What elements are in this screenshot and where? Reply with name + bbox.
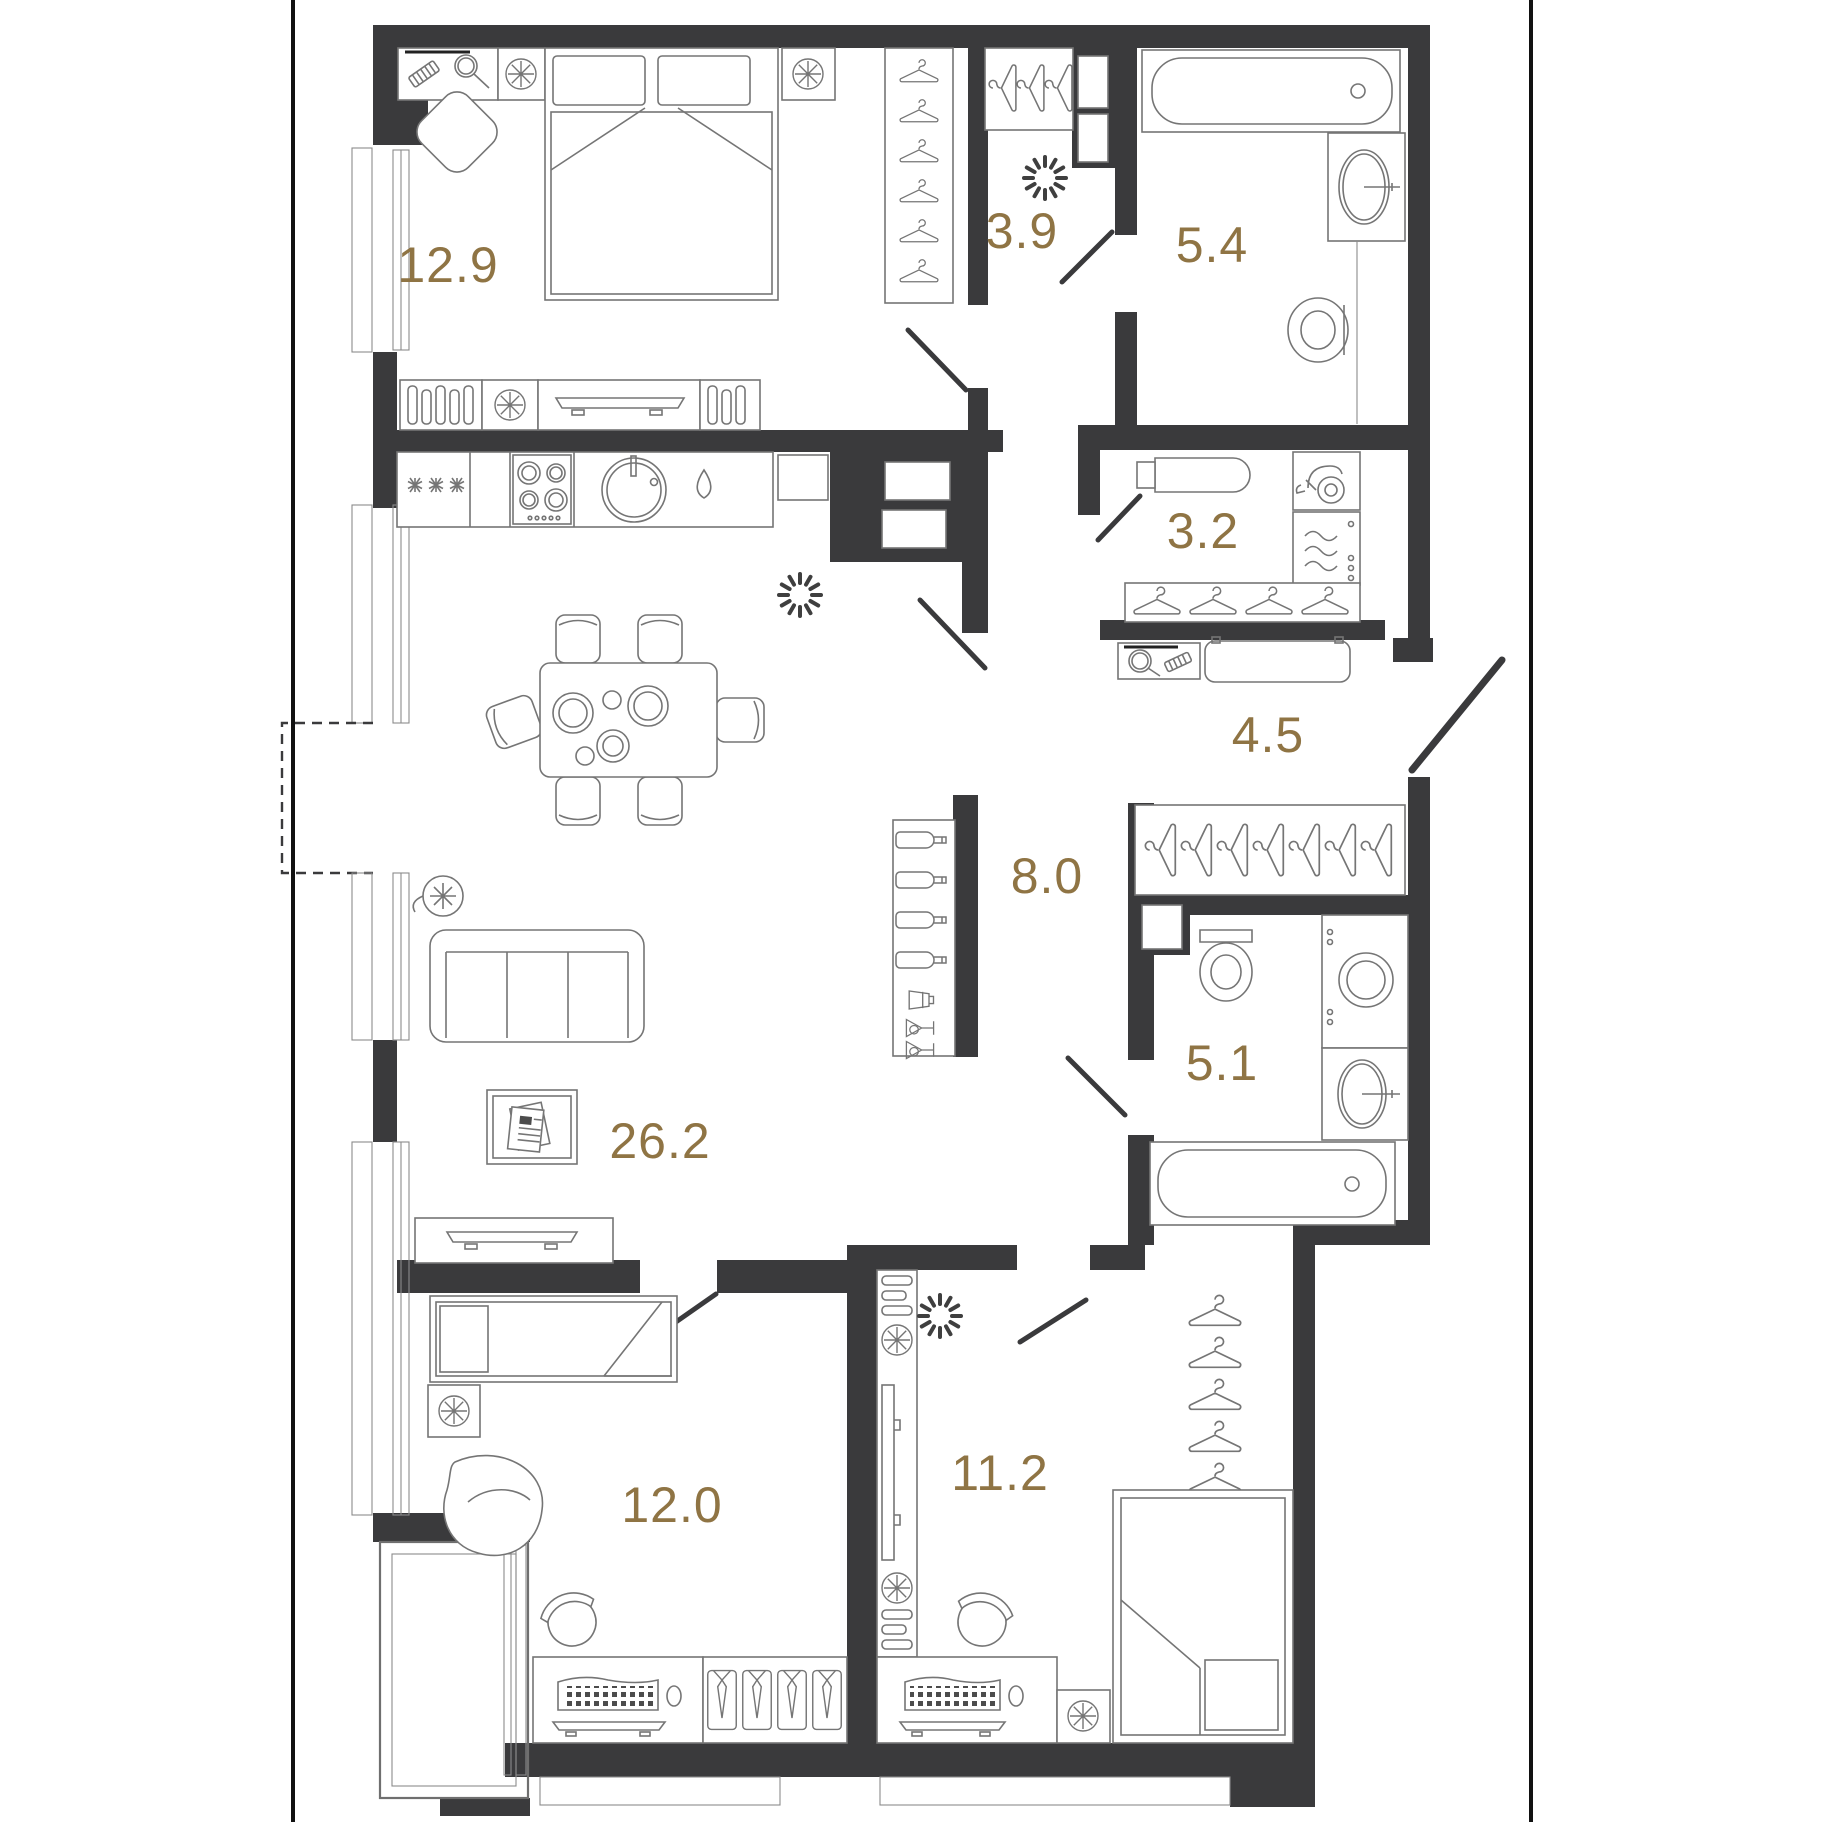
door-swing (908, 330, 966, 390)
sofa-icon (430, 930, 644, 1042)
wardrobe-shirts (703, 1657, 847, 1743)
desk-icon (533, 1657, 703, 1743)
desk-chair-icon (536, 1585, 607, 1654)
hanger-icon (1189, 1463, 1240, 1493)
kitchen-counter (397, 452, 773, 527)
dresser-icon (398, 48, 498, 100)
room-living-kitchen: 26.2 (397, 452, 828, 1263)
area-label-entry-hallway: 4.5 (1232, 707, 1305, 763)
room-hall: 8.0 (893, 820, 1083, 1059)
window (352, 1142, 409, 1515)
chair-icon (638, 615, 682, 663)
room-entry-hallway: 4.5 (1135, 707, 1405, 895)
bathtub-icon (1142, 50, 1400, 132)
double-bed-icon (545, 48, 778, 300)
bench-icon (1205, 637, 1350, 682)
lamp-icon (882, 1325, 912, 1355)
lamp-icon (506, 59, 536, 89)
single-bed-icon (1113, 1490, 1293, 1743)
chair-icon (556, 777, 600, 825)
lamp-icon (495, 390, 525, 420)
closet-rail (985, 48, 1073, 130)
window (352, 873, 409, 1040)
room-bedroom-master: 12.9 (397, 48, 953, 430)
lamp-icon (793, 59, 823, 89)
area-label-walkin-closet: 3.9 (986, 203, 1059, 259)
room-bathroom-second: 5.1 (1150, 915, 1408, 1225)
room-bedroom-third: 11.2 (877, 1270, 1293, 1743)
chair-icon (556, 615, 600, 663)
chair-icon (484, 693, 544, 751)
cabinet-row (400, 380, 760, 430)
room-bathroom-master: 5.4 (1142, 50, 1405, 424)
door-swing (1020, 1300, 1086, 1342)
tv-console (415, 1218, 613, 1263)
ceiling-light-icon (919, 1295, 961, 1337)
room-bedroom-second: 12.0 (428, 1296, 847, 1743)
water-heater-icon (1293, 512, 1360, 585)
toilet-icon (1200, 930, 1252, 1001)
area-label-bedroom-third: 11.2 (951, 1445, 1049, 1501)
area-label-hall: 8.0 (1011, 848, 1084, 904)
hanger-icon (1189, 1379, 1240, 1409)
floor-plan-drawing: 12.9 3.9 5.4 (0, 0, 1822, 1822)
entrance-door (1412, 660, 1502, 770)
chair-icon (716, 698, 764, 742)
room-laundry: 3.2 (1118, 452, 1360, 682)
area-label-living-kitchen: 26.2 (609, 1113, 710, 1169)
hanger-rail (1135, 805, 1405, 895)
area-label-bathroom-master: 5.4 (1176, 217, 1249, 273)
bathtub-icon (1150, 1142, 1395, 1225)
hanger-rail (1125, 583, 1360, 622)
ceiling-light-icon (1024, 157, 1066, 199)
desk-icon (877, 1657, 1057, 1743)
sink-icon (1322, 1048, 1408, 1140)
hanger-icon (1189, 1421, 1240, 1451)
sink-icon (1328, 133, 1405, 241)
floor-plan-page: 12.9 3.9 5.4 (0, 0, 1822, 1822)
shelving-unit (877, 1270, 917, 1657)
dining-table-icon (484, 615, 764, 825)
lamp-icon (1068, 1701, 1098, 1731)
lamp-icon (882, 1573, 912, 1603)
window-sill (540, 1777, 1230, 1805)
door-swing (1062, 232, 1112, 282)
tv-stand (538, 380, 700, 430)
desk-chair-icon (949, 1587, 1017, 1652)
floor-lamp-icon (413, 876, 463, 916)
area-label-bathroom-second: 5.1 (1186, 1035, 1259, 1091)
single-bed-icon (430, 1296, 677, 1382)
page-frame-line-left (291, 0, 295, 1822)
page-frame-line-right (1529, 0, 1533, 1822)
area-label-bedroom-second: 12.0 (621, 1477, 722, 1533)
ceiling-light-icon (779, 574, 821, 616)
hanger-column (1189, 1295, 1240, 1493)
vacuum-icon (1293, 452, 1360, 510)
mirror-shelf (1118, 643, 1200, 679)
balcony-door-opening (282, 723, 373, 873)
door-swing (1098, 496, 1140, 540)
coffee-table-icon (487, 1090, 577, 1164)
chair-icon (638, 777, 682, 825)
bar-shelf (893, 820, 955, 1059)
open-closet (885, 48, 953, 303)
bean-bag-icon (444, 1456, 543, 1556)
window (352, 505, 409, 723)
washing-machine-icon (1322, 915, 1408, 1048)
lamp-icon (439, 1396, 469, 1426)
area-label-laundry: 3.2 (1167, 503, 1240, 559)
room-walkin-closet: 3.9 (985, 48, 1073, 259)
hanger-icon (1189, 1337, 1240, 1367)
toilet-icon (1288, 298, 1348, 362)
hanger-icon (1189, 1295, 1240, 1325)
door-swing (1068, 1058, 1125, 1115)
ironing-board-icon (1137, 458, 1250, 492)
area-label-bedroom-master: 12.9 (397, 237, 498, 293)
